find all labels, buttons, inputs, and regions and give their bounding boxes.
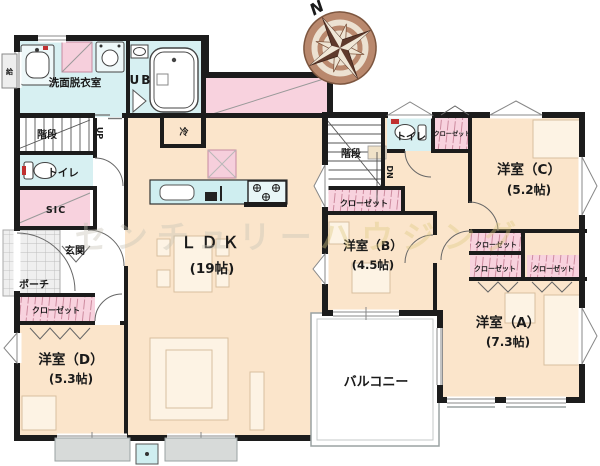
room-c-size: (5.2帖) [507, 182, 551, 197]
watermark-part1: センチュリー [75, 218, 320, 256]
kitchen-sink [160, 185, 194, 200]
stairs2-label: 階段 [341, 147, 361, 160]
room-a-bed [544, 295, 582, 365]
closet-hall-label: クローゼット [340, 198, 388, 208]
balcony-label: バルコニー [344, 375, 409, 390]
water-heater-label: 給 [6, 67, 14, 76]
room-a-size: (7.3帖) [486, 334, 530, 349]
closet-a1-label: クローゼット [474, 264, 516, 273]
stove [248, 181, 286, 203]
floor2-plan: 階段 DN トイレ クローゼット クローゼット 洋室（C） (5.2帖) 洋室（… [311, 101, 597, 446]
room-a-label: 洋室（A） [476, 314, 540, 331]
room-b-size: (4.5帖) [352, 258, 394, 272]
kitchen-kettle [205, 192, 217, 201]
room-d-furniture [22, 396, 56, 430]
closet-top-label: クローゼット [433, 130, 470, 138]
fridge-label: 冷 [179, 126, 188, 138]
deck-left [55, 438, 130, 461]
bath-label: UB [130, 73, 153, 87]
toilet2-label: トイレ [396, 131, 426, 143]
deck-right [165, 438, 237, 461]
room-c-furniture [533, 120, 583, 158]
ldk-size: (19帖) [190, 260, 235, 277]
closet-a2-label: クローゼット [532, 264, 574, 273]
sofa [150, 338, 228, 420]
washroom-label: 洗面脱衣室 [49, 76, 102, 89]
room-d-label: 洋室（D） [38, 351, 103, 368]
floorplan-svg: 給 洗面脱衣室 UB 冷 階段 UP トイレ SIC 玄関 ポーチ クローゼット… [0, 0, 600, 466]
watermark-part2: ハウジング [320, 218, 525, 256]
stairs2-dn-label: DN [385, 165, 394, 178]
floorplan-image: 給 洗面脱衣室 UB 冷 階段 UP トイレ SIC 玄関 ポーチ クローゼット… [0, 0, 600, 466]
toilet1-label: トイレ [47, 167, 79, 179]
stairs1-up-label: UP [95, 127, 104, 139]
tv-board [250, 372, 264, 430]
room-d-size: (5.3帖) [49, 371, 93, 386]
sic-label: SIC [46, 205, 66, 216]
porch-label: ポーチ [19, 278, 49, 291]
bath-sink-icon [131, 45, 148, 58]
washer-icon [96, 42, 124, 72]
room-c-label: 洋室（C） [497, 161, 561, 178]
stairs1-label: 階段 [37, 128, 57, 141]
watermark-text: センチュリーハウジング [75, 218, 525, 256]
closet1f-label: クローゼット [32, 305, 80, 315]
